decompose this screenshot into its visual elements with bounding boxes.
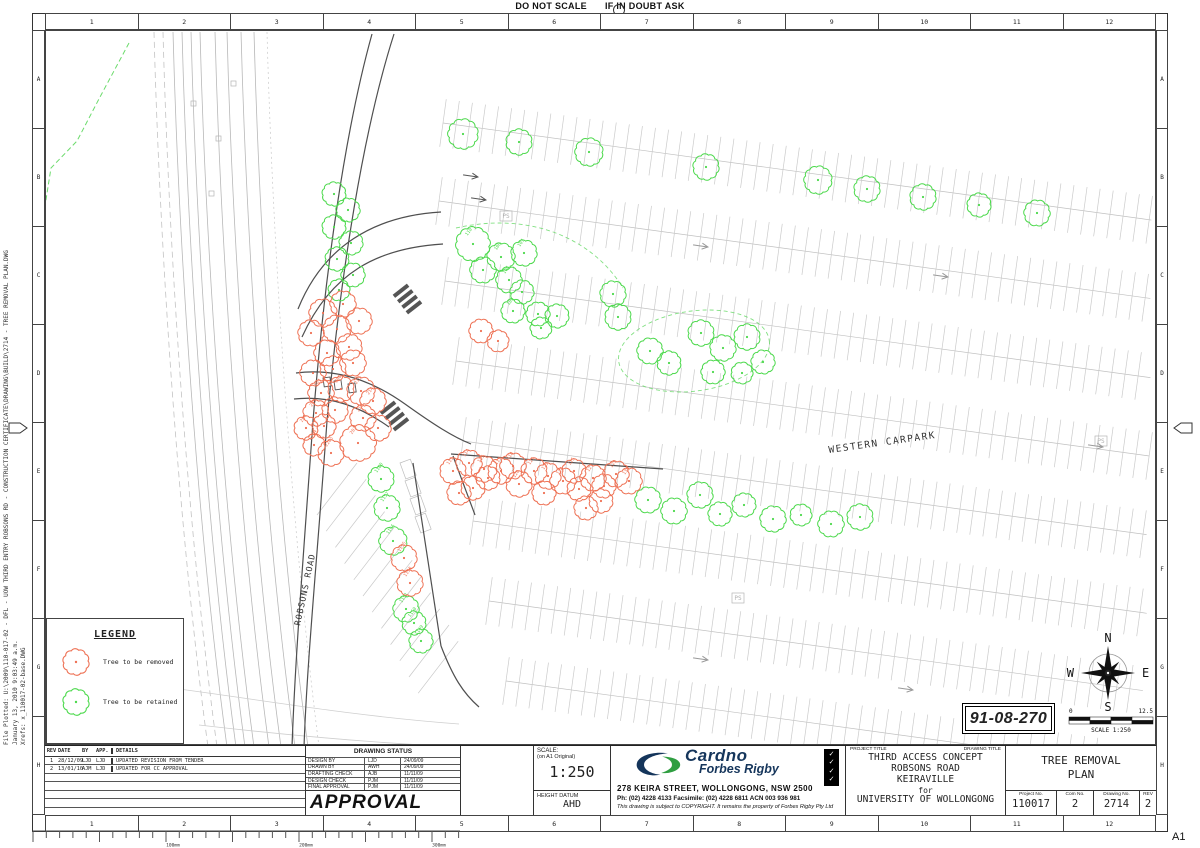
grid-cell: 8 — [693, 816, 786, 831]
svg-text:121: 121 — [527, 456, 537, 466]
tree-retained: 1160 — [368, 461, 394, 492]
tree-retained — [336, 198, 360, 222]
tree-retained: 107 — [511, 238, 537, 266]
grid-cell: B — [33, 128, 44, 226]
status-row: DESIGN CHECKPJM11/11/09 — [306, 777, 460, 784]
grid-cell: E — [33, 422, 44, 520]
tree-removed: 113 — [440, 456, 466, 485]
margin-ruler: 100mm200mm300mm — [30, 830, 475, 847]
grid-cell: 2 — [138, 816, 231, 831]
copyright-note: This drawing is subject to COPYRIGHT. It… — [617, 804, 839, 810]
grid-cell: D — [1157, 324, 1167, 422]
com-no-cell: Com No. 2 — [1056, 791, 1093, 815]
svg-text:1156: 1156 — [385, 523, 396, 536]
revision-row: 128/12/09LJDLJDUPDATED REVISION FROM TEN… — [45, 757, 305, 765]
tree-retained: 108 — [487, 241, 515, 271]
tree-retained: 1151 — [393, 591, 420, 622]
tree-removed — [323, 315, 351, 343]
tree-retained — [790, 504, 812, 526]
tree-retained — [341, 263, 365, 287]
svg-text:125: 125 — [567, 456, 577, 466]
carpark-label: WESTERN CARPARK — [828, 430, 937, 456]
legend-item-label: Tree to be retained — [103, 698, 177, 706]
grid-cell: 3 — [230, 14, 323, 29]
tree-retained — [818, 511, 845, 537]
grid-cell: F — [33, 520, 44, 618]
grid-cell: H — [33, 716, 44, 814]
project-no-value: 110017 — [1012, 798, 1050, 810]
revision-row: 213/01/10AJMLJDUPDATED FOR CC APPROVAL — [45, 765, 305, 773]
grid-cell: 9 — [785, 14, 878, 29]
grid-cell: 7 — [600, 816, 693, 831]
tree-retained — [751, 350, 775, 374]
grid-cell: 6 — [508, 816, 601, 831]
tree-removed — [340, 350, 367, 376]
compass-letter: E — [1142, 666, 1149, 680]
tree-retained — [847, 504, 873, 531]
tree-symbol-icon — [59, 644, 93, 680]
scale-sub-label: (on A1 Original) — [537, 754, 607, 760]
grid-letters-right: ABCDEFGH — [1156, 30, 1168, 815]
title-block: REVDATEBYAPP.DETAILS 128/12/09LJDLJDUPDA… — [45, 745, 1156, 815]
grid-cell: 5 — [415, 14, 508, 29]
tree-removed — [309, 299, 337, 327]
drawing-status-title: DRAWING STATUS — [306, 746, 460, 757]
tree-retained — [734, 324, 760, 351]
scale-block: SCALE: (on A1 Original) 1:250 HEIGHT DAT… — [533, 746, 610, 815]
tree-removed — [346, 308, 373, 334]
cardno-logo-icon — [635, 750, 681, 778]
tree-retained — [688, 320, 714, 347]
revision-header-cell: APP. — [96, 748, 111, 754]
revision-row — [45, 791, 305, 799]
tree-removed — [532, 481, 556, 505]
grid-cell: 1 — [46, 816, 138, 831]
blank-cell — [460, 746, 533, 815]
tree-removed: 1155 — [391, 540, 417, 571]
grid-cell: 3 — [230, 816, 323, 831]
company-address: 278 KEIRA STREET, WOLLONGONG, NSW 2500 — [617, 784, 839, 793]
status-row: FINAL APPROVALPJM11/11/09 — [306, 783, 460, 790]
company-phone: Ph: (02) 4228 4133 Facsimile: (02) 4228 … — [617, 795, 839, 802]
tree-retained — [687, 482, 713, 508]
svg-text:105: 105 — [506, 296, 516, 306]
svg-text:114: 114 — [462, 448, 472, 458]
tree-retained — [731, 362, 753, 384]
tree-removed: 130 — [616, 466, 643, 494]
tree-retained — [760, 506, 787, 532]
tree-removed — [589, 489, 613, 513]
grid-cell: H — [1157, 716, 1167, 814]
tree-retained — [322, 215, 346, 239]
drawing-status-block: DRAWING STATUS DESIGN BYLJD24/09/09DRAWN… — [305, 746, 460, 815]
status-row: DRAFTING CHECKAJB11/11/09 — [306, 770, 460, 777]
drawing-sheet: { "sheet": { "note_left": "DO NOT SCALE"… — [0, 0, 1200, 848]
site-plan-canvas: PSPSPS1101081071061051160115711561151115… — [45, 30, 1156, 745]
grid-cell: A — [33, 31, 44, 128]
svg-text:PS: PS — [734, 595, 742, 602]
status-row: DRAWN BYAWH24/09/09 — [306, 764, 460, 771]
legend-title: LEGEND — [47, 629, 183, 640]
revision-header-cell: DETAILS — [111, 748, 305, 754]
grid-cell: 12 — [1063, 14, 1156, 29]
tree-retained: 1157 — [374, 490, 400, 521]
grid-cell: 1 — [46, 14, 138, 29]
rev-value: 2 — [1145, 798, 1151, 810]
grid-cell: E — [1157, 422, 1167, 520]
tree-retained — [657, 351, 681, 375]
grid-cell: 4 — [323, 816, 416, 831]
revision-row — [45, 782, 305, 790]
revision-header-cell: DATE — [58, 748, 82, 754]
drawing-title-line: TREE REMOVAL — [1041, 754, 1120, 768]
grid-cell: 9 — [785, 816, 878, 831]
tree-retained — [605, 304, 631, 331]
tree-retained: 105 — [501, 296, 525, 323]
svg-text:215: 215 — [353, 375, 363, 385]
grid-cell: G — [1157, 618, 1167, 716]
tree-removed — [447, 481, 471, 505]
grid-letters-left: ABCDEFGH — [32, 30, 45, 815]
grid-cell: 2 — [138, 14, 231, 29]
grid-cell: 12 — [1063, 816, 1156, 831]
revision-header: REVDATEBYAPP.DETAILS — [45, 746, 305, 757]
grid-cell: C — [33, 226, 44, 324]
quality-system-badge: ✓✓✓✓ — [824, 749, 839, 786]
compass-letter: S — [1104, 700, 1111, 714]
svg-text:108: 108 — [493, 241, 503, 251]
tree-retained — [693, 154, 719, 181]
tree-retained — [710, 335, 736, 361]
approval-stamp: APPROVAL — [306, 790, 460, 815]
tree-retained — [701, 360, 725, 384]
revision-row — [45, 808, 305, 815]
tree-retained — [661, 498, 688, 524]
svg-text:115: 115 — [477, 454, 487, 464]
project-title-line: KEIRAVILLE — [846, 775, 1005, 786]
compass-letter: N — [1104, 631, 1111, 645]
legend-item-retained: Tree to be retained — [59, 684, 183, 720]
tree-retained — [600, 281, 626, 307]
company-block: Cardno Forbes Rigby ✓✓✓✓ 278 KEIRA STREE… — [610, 746, 845, 815]
tree-retained — [637, 338, 664, 364]
tree-retained — [470, 257, 497, 283]
grid-cell: 11 — [970, 816, 1063, 831]
grid-cell: G — [33, 618, 44, 716]
tree-retained — [448, 119, 478, 150]
project-no-cell: Project No. 110017 — [1006, 791, 1056, 815]
grid-cell: 4 — [323, 14, 416, 29]
svg-text:205: 205 — [309, 398, 319, 408]
svg-text:107: 107 — [517, 238, 527, 248]
tree-retained: 1149 — [409, 624, 433, 653]
drawing-no-cell: Drawing No. 2714 — [1093, 791, 1139, 815]
tree-removed: 2204 — [303, 428, 325, 456]
grid-cell: 10 — [878, 816, 971, 831]
grid-cell: 7 — [600, 14, 693, 29]
grid-cell: 8 — [693, 14, 786, 29]
legend-item-label: Tree to be removed — [103, 658, 173, 666]
svg-text:130: 130 — [622, 466, 632, 476]
tree-retained — [854, 176, 880, 203]
compass-letter: W — [1067, 666, 1075, 680]
svg-text:123: 123 — [541, 461, 551, 471]
grid-cell: F — [1157, 520, 1167, 618]
svg-text:PS: PS — [502, 213, 510, 220]
right-edge-arrow — [1173, 421, 1193, 435]
tree-symbol-icon — [59, 684, 93, 720]
svg-text:200mm: 200mm — [299, 843, 313, 848]
project-title-line: UNIVERSITY OF WOLLONGONG — [846, 795, 1005, 806]
company-name-2: Forbes Rigby — [699, 764, 779, 776]
scale-value: 1:250 — [537, 763, 607, 781]
grid-cell: D — [33, 324, 44, 422]
svg-text:0: 0 — [1069, 708, 1073, 715]
tree-removed — [469, 319, 493, 343]
grid-cell: 10 — [878, 14, 971, 29]
tree-retained — [322, 182, 346, 206]
tree-removed: 124 — [550, 466, 577, 494]
revision-table: REVDATEBYAPP.DETAILS 128/12/09LJDLJDUPDA… — [45, 746, 305, 815]
note-left: DO NOT SCALE — [515, 1, 587, 11]
revision-header-cell: REV — [45, 748, 58, 754]
project-title-block: PROJECT TITLE DRAWING TITLE THIRD ACCESS… — [845, 746, 1005, 815]
grid-cell: A — [1157, 31, 1167, 128]
tree-retained — [1024, 200, 1051, 226]
grid-cell: 11 — [970, 14, 1063, 29]
drawing-number-badge: 91-08-270 — [962, 703, 1055, 734]
plot-file-info: File Plotted: U:\2009\110-017-02 - DFL -… — [3, 33, 29, 745]
tree-removed — [487, 330, 509, 352]
drawing-number-text: 91-08-270 — [965, 706, 1052, 731]
revision-row — [45, 774, 305, 782]
drawing-title-block: TREE REMOVAL PLAN Project No. 110017 Com… — [1005, 746, 1156, 815]
tree-retained — [530, 317, 552, 339]
grid-cell: B — [1157, 128, 1167, 226]
svg-text:100mm: 100mm — [166, 843, 180, 848]
revision-row — [45, 799, 305, 807]
tree-retained — [635, 487, 662, 513]
grid-cell: 5 — [415, 816, 508, 831]
drawing-title-line: PLAN — [1068, 768, 1095, 782]
grid-cell: C — [1157, 226, 1167, 324]
site-plan-drawing: PSPSPS1101081071061051160115711561151115… — [46, 31, 1156, 745]
svg-text:129: 129 — [609, 459, 619, 469]
sheet-size-label: A1 — [1172, 831, 1185, 843]
grid-cell: 6 — [508, 14, 601, 29]
tree-retained — [732, 493, 756, 517]
svg-text:SCALE 1:250: SCALE 1:250 — [1091, 727, 1131, 734]
svg-text:12.5: 12.5 — [1139, 708, 1154, 715]
drawing-no-value: 2714 — [1104, 798, 1129, 810]
do-not-scale-note: DO NOT SCALEIF IN DOUBT ASK — [460, 1, 740, 11]
tree-retained — [545, 304, 569, 328]
svg-text:300mm: 300mm — [432, 843, 446, 848]
status-row: DESIGN BYLJD24/09/09 — [306, 757, 460, 764]
legend-item-removed: Tree to be removed — [59, 644, 183, 680]
com-no-value: 2 — [1072, 798, 1078, 810]
revision-header-cell: BY — [82, 748, 96, 754]
legend-box: LEGEND Tree to be removedTree to be reta… — [46, 618, 184, 744]
rev-cell: REV 2 — [1139, 791, 1156, 815]
svg-text:207: 207 — [314, 378, 324, 388]
tree-retained — [910, 184, 936, 211]
height-datum-value: AHD — [537, 799, 607, 810]
tree-retained: 110 — [456, 227, 491, 262]
grid-numbers-top: 123456789101112 — [45, 13, 1156, 30]
tree-retained — [708, 502, 732, 526]
